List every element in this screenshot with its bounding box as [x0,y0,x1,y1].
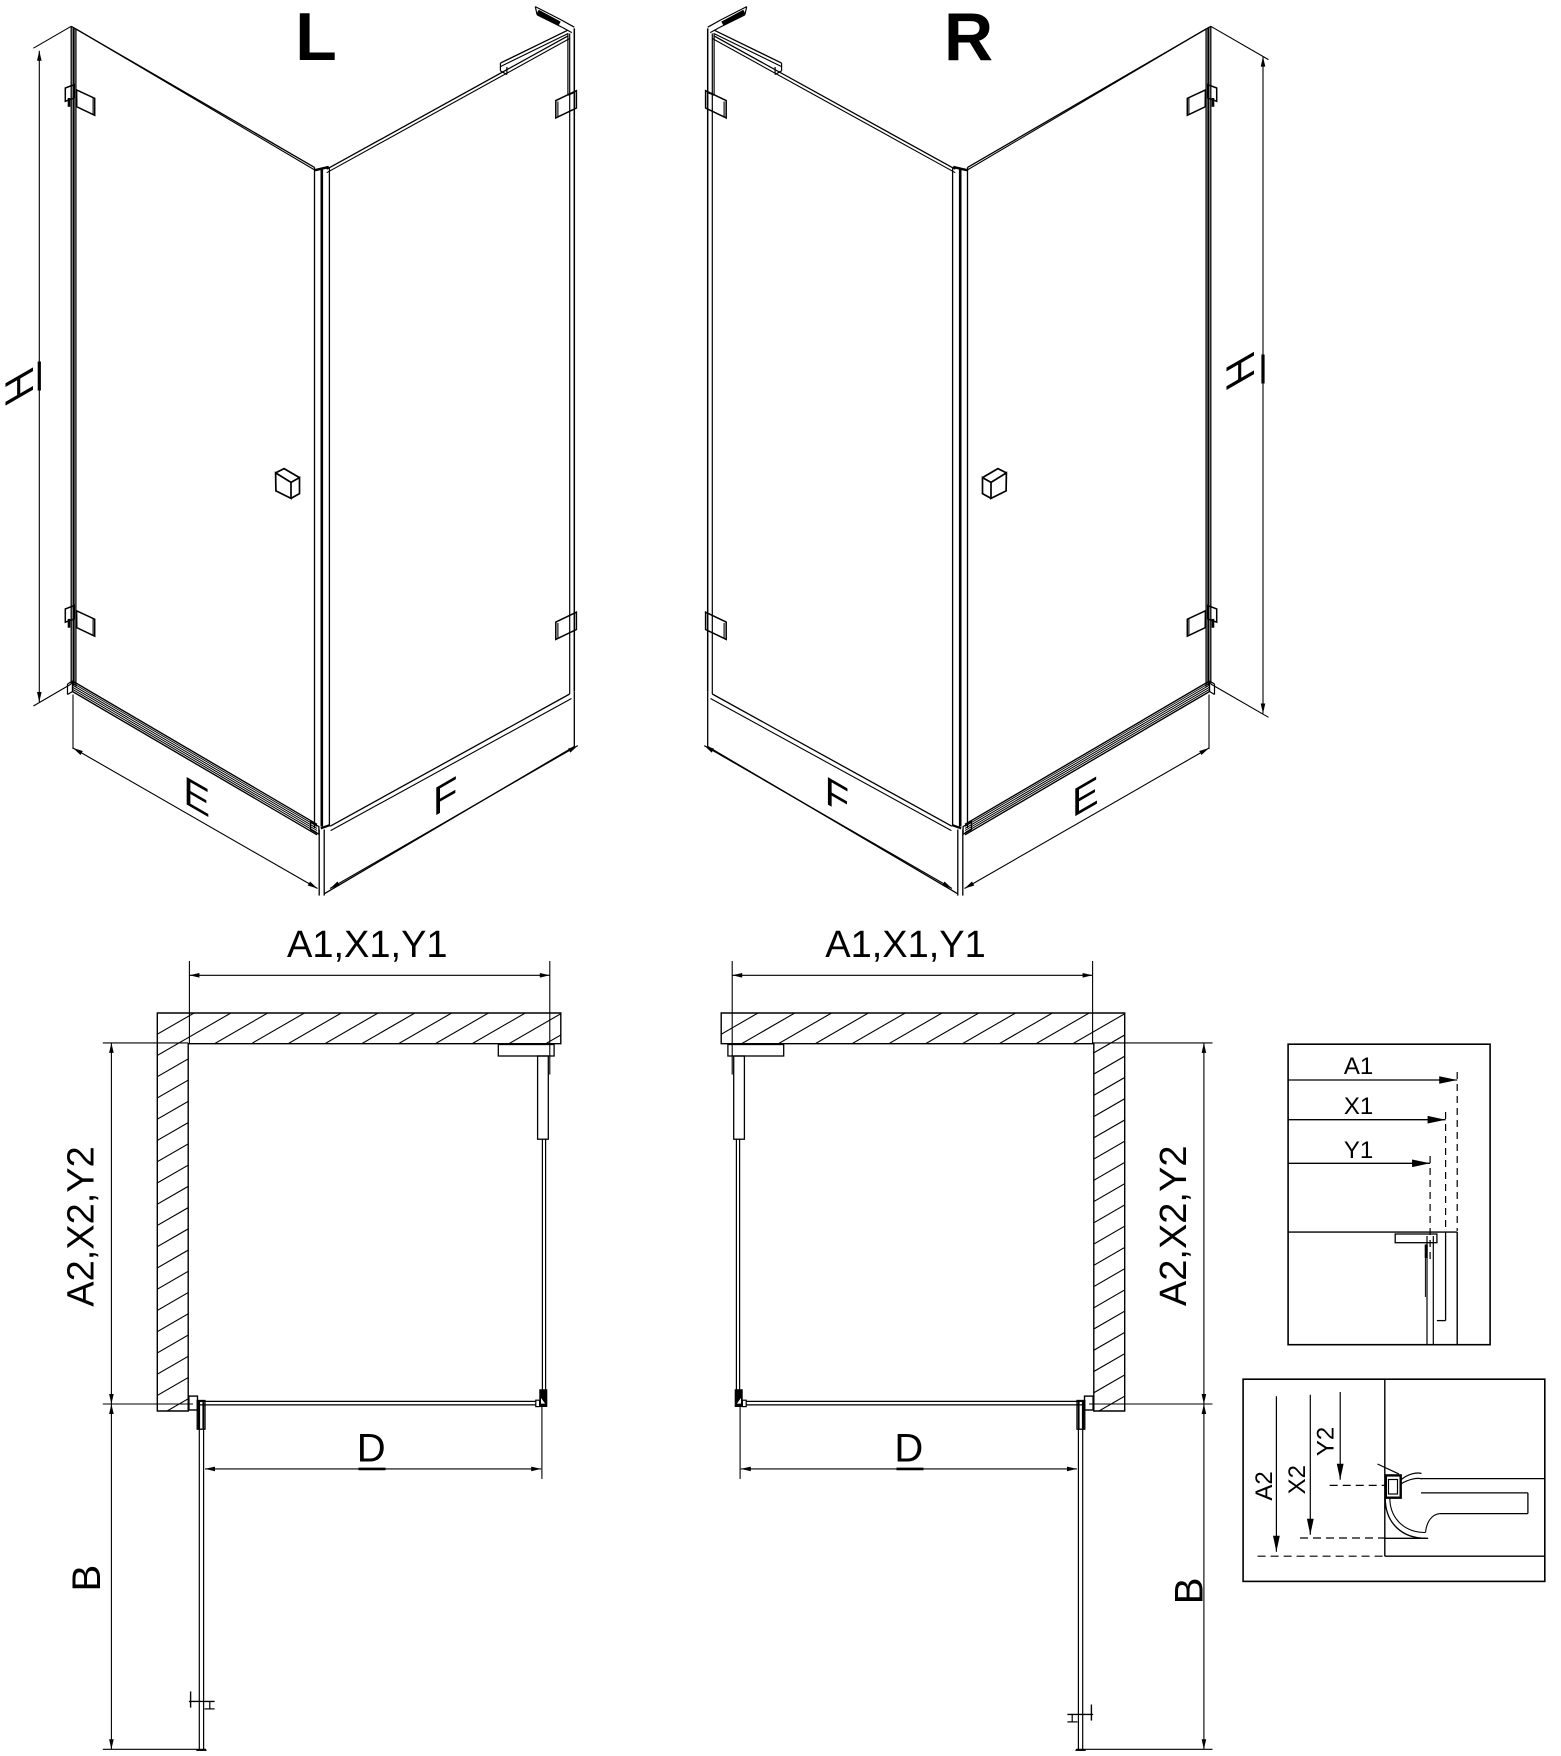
svg-text:D: D [894,1427,923,1471]
svg-text:D: D [357,1427,386,1471]
svg-text:A2,X2,Y2: A2,X2,Y2 [1153,1146,1195,1307]
svg-text:X2: X2 [1284,1465,1311,1494]
svg-text:L: L [295,0,337,75]
svg-text:A1: A1 [1344,1053,1373,1080]
svg-text:A2: A2 [1251,1471,1278,1500]
svg-text:Y1: Y1 [1344,1137,1373,1164]
svg-text:A1,X1,Y1: A1,X1,Y1 [287,924,448,966]
svg-text:R: R [944,0,993,75]
svg-text:B: B [1168,1578,1212,1605]
svg-text:Y2: Y2 [1312,1427,1339,1456]
svg-text:B: B [65,1565,109,1592]
svg-text:A1,X1,Y1: A1,X1,Y1 [825,924,986,966]
svg-text:X1: X1 [1344,1093,1373,1120]
svg-text:A2,X2,Y2: A2,X2,Y2 [61,1146,103,1307]
